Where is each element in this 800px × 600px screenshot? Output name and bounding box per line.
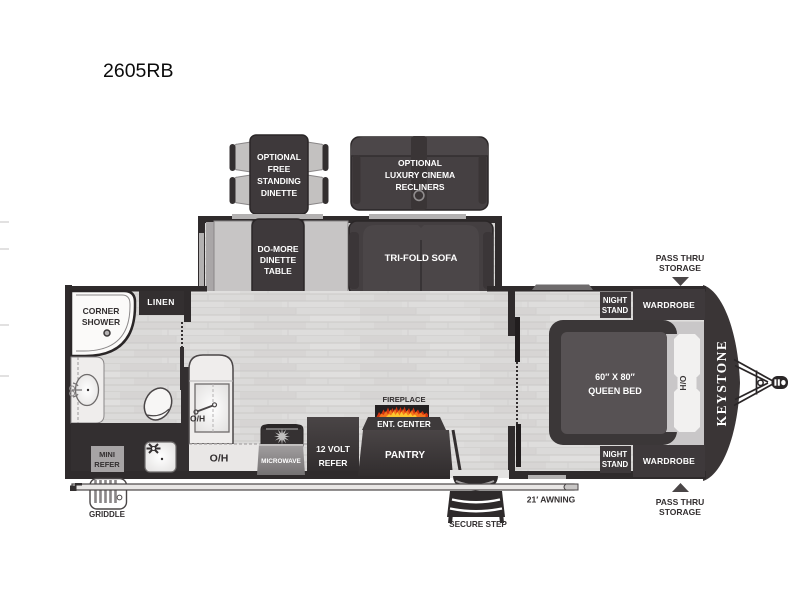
svg-text:PASS THRU: PASS THRU bbox=[656, 253, 705, 263]
svg-text:O/H: O/H bbox=[210, 453, 229, 465]
svg-text:OPTIONAL: OPTIONAL bbox=[398, 158, 442, 168]
svg-text:LINEN: LINEN bbox=[147, 297, 175, 307]
svg-text:SECURE STEP: SECURE STEP bbox=[449, 520, 507, 529]
svg-text:LUXURY CINEMA: LUXURY CINEMA bbox=[385, 170, 455, 180]
svg-text:QUEEN BED: QUEEN BED bbox=[588, 386, 642, 396]
svg-text:PASS THRU: PASS THRU bbox=[656, 497, 705, 507]
svg-text:2605RB: 2605RB bbox=[103, 60, 173, 82]
svg-text:WARDROBE: WARDROBE bbox=[643, 300, 695, 310]
svg-text:NIGHT: NIGHT bbox=[603, 296, 627, 305]
svg-text:STORAGE: STORAGE bbox=[659, 507, 701, 517]
svg-text:STAND: STAND bbox=[602, 460, 629, 469]
svg-text:ENT. CENTER: ENT. CENTER bbox=[377, 420, 431, 429]
svg-text:H/O: H/O bbox=[678, 375, 688, 391]
svg-text:RECLINERS: RECLINERS bbox=[395, 182, 444, 192]
svg-text:STORAGE: STORAGE bbox=[659, 263, 701, 273]
svg-text:FREE: FREE bbox=[268, 164, 291, 174]
svg-text:MICROWAVE: MICROWAVE bbox=[261, 458, 301, 465]
svg-text:DO-MORE: DO-MORE bbox=[257, 244, 298, 254]
svg-text:OPTIONAL: OPTIONAL bbox=[257, 152, 301, 162]
svg-text:60″ X 80″: 60″ X 80″ bbox=[595, 372, 635, 382]
svg-text:21′ AWNING: 21′ AWNING bbox=[527, 495, 576, 505]
svg-text:TABLE: TABLE bbox=[264, 266, 292, 276]
svg-text:12 VOLT: 12 VOLT bbox=[316, 444, 351, 454]
svg-text:DINETTE: DINETTE bbox=[260, 255, 297, 265]
svg-text:STAND: STAND bbox=[602, 306, 629, 315]
svg-text:FIREPLACE: FIREPLACE bbox=[382, 395, 425, 404]
svg-text:GRIDDLE: GRIDDLE bbox=[89, 510, 126, 519]
svg-text:WARDROBE: WARDROBE bbox=[643, 456, 695, 466]
svg-text:O/H: O/H bbox=[190, 414, 205, 424]
svg-text:MINI: MINI bbox=[99, 450, 115, 459]
svg-text:PANTRY: PANTRY bbox=[385, 450, 425, 461]
svg-text:DINETTE: DINETTE bbox=[261, 188, 298, 198]
svg-text:KEYSTONE: KEYSTONE bbox=[714, 340, 729, 427]
svg-text:REFER: REFER bbox=[94, 460, 120, 469]
svg-text:CORNER: CORNER bbox=[83, 306, 120, 316]
svg-text:STANDING: STANDING bbox=[257, 176, 301, 186]
svg-text:REFER: REFER bbox=[319, 458, 348, 468]
svg-text:NIGHT: NIGHT bbox=[603, 450, 627, 459]
svg-text:SHOWER: SHOWER bbox=[82, 317, 120, 327]
svg-text:TRI-FOLD SOFA: TRI-FOLD SOFA bbox=[385, 253, 458, 264]
